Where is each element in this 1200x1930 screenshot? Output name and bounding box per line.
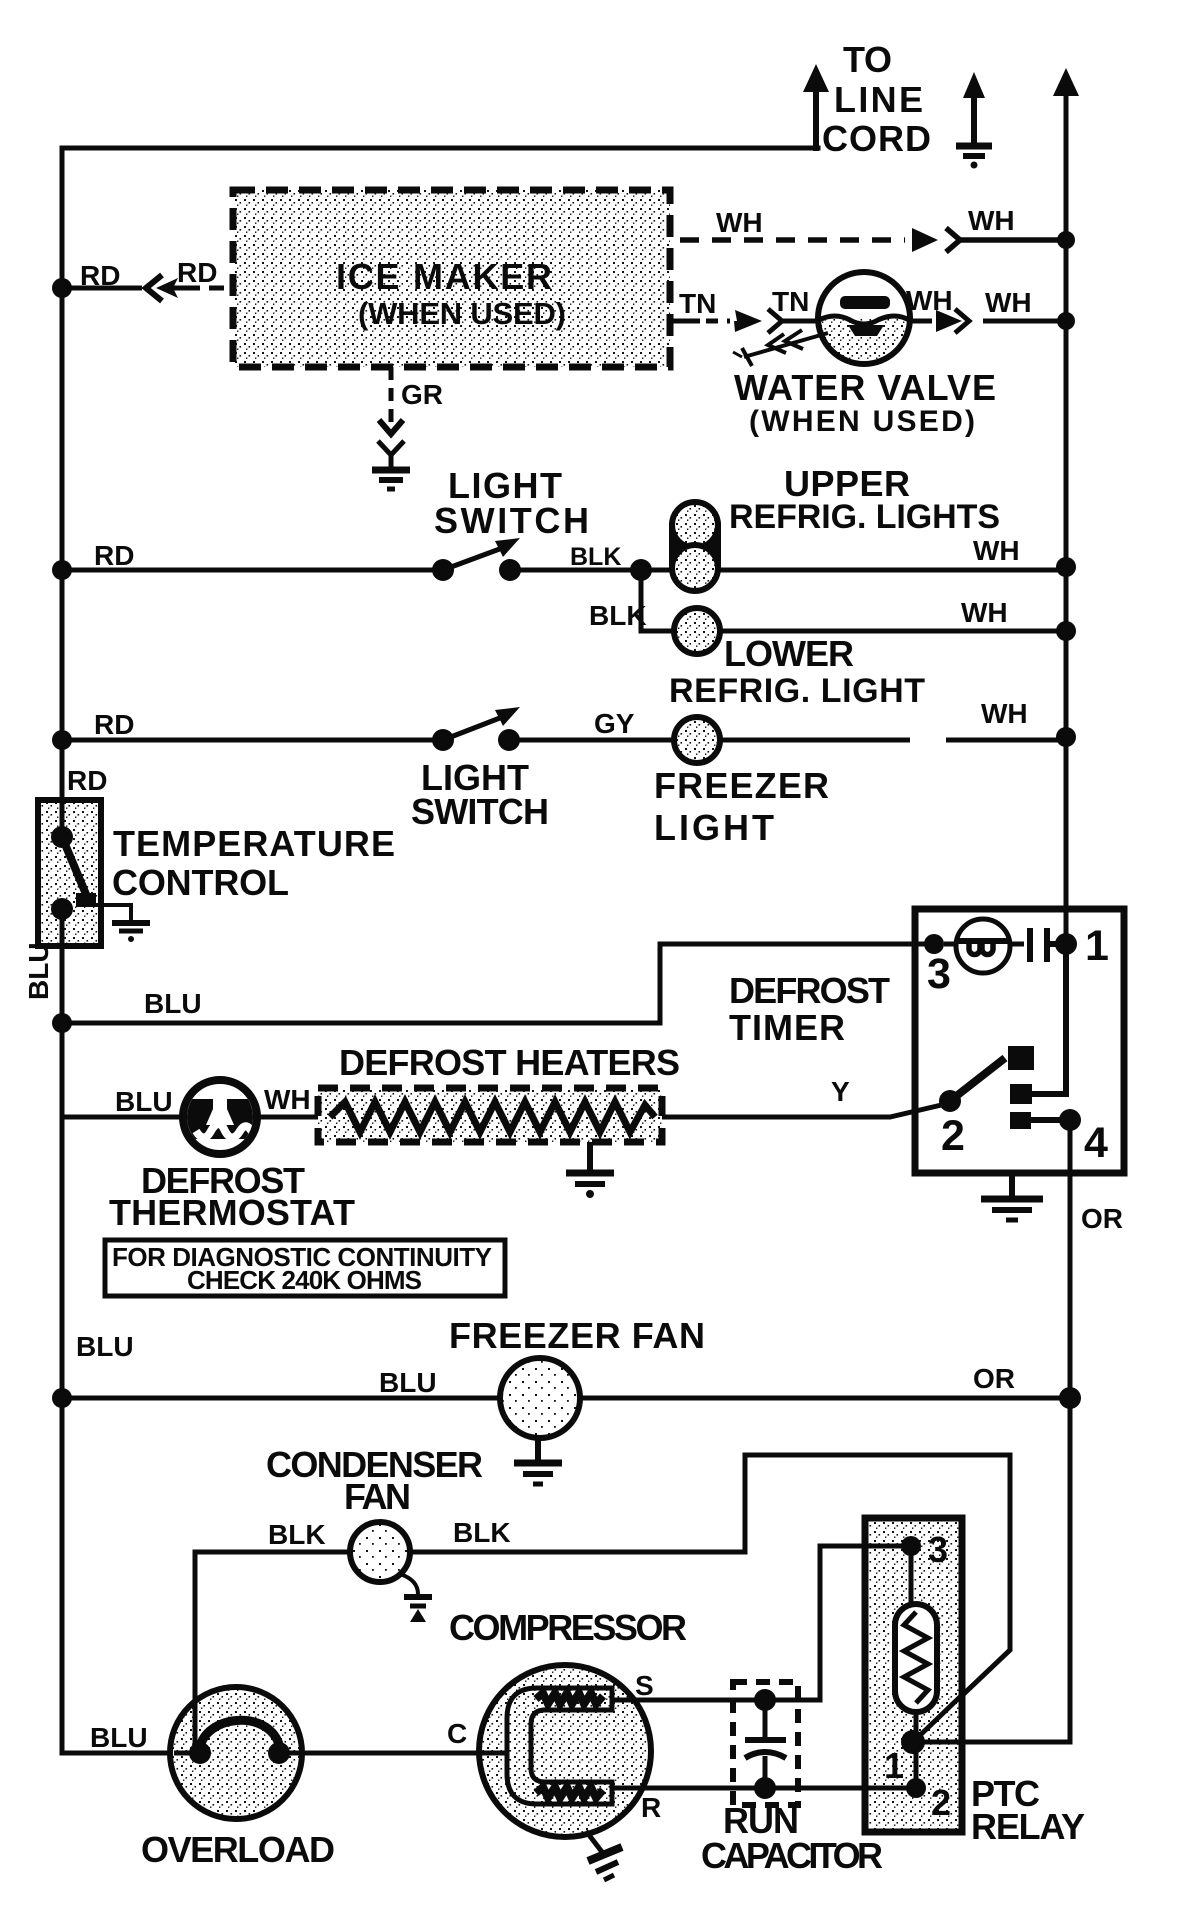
svg-text:RD: RD (94, 709, 134, 740)
svg-text:GY: GY (594, 708, 635, 739)
svg-text:RELAY: RELAY (971, 1806, 1085, 1847)
svg-text:TIMER: TIMER (729, 1007, 845, 1048)
svg-text:WH: WH (906, 285, 953, 316)
svg-text:BLU: BLU (23, 942, 54, 1000)
svg-text:SWITCH: SWITCH (434, 500, 589, 541)
svg-text:THERMOSTAT: THERMOSTAT (109, 1192, 355, 1233)
svg-text:GR: GR (401, 379, 443, 410)
svg-text:BLU: BLU (115, 1086, 173, 1117)
svg-text:RD: RD (177, 257, 217, 288)
svg-text:BLU: BLU (76, 1331, 134, 1362)
svg-text:CONTROL: CONTROL (112, 862, 289, 903)
svg-text:C: C (447, 1718, 467, 1749)
svg-text:3: 3 (928, 1529, 948, 1570)
svg-text:TO: TO (843, 39, 892, 80)
svg-text:3: 3 (927, 950, 951, 998)
svg-text:WH: WH (716, 207, 763, 238)
svg-text:DEFROST HEATERS: DEFROST HEATERS (339, 1042, 680, 1083)
svg-text:FAN: FAN (344, 1476, 411, 1517)
svg-text:4: 4 (1084, 1119, 1108, 1167)
svg-text:BLU: BLU (90, 1722, 148, 1753)
svg-text:OVERLOAD: OVERLOAD (141, 1829, 335, 1870)
svg-text:WH: WH (973, 535, 1020, 566)
svg-text:REFRIG. LIGHT: REFRIG. LIGHT (669, 672, 925, 710)
svg-text:RD: RD (94, 540, 134, 571)
svg-text:SWITCH: SWITCH (411, 791, 549, 832)
svg-text:WH: WH (968, 205, 1015, 236)
svg-text:RD: RD (67, 765, 107, 796)
svg-text:BLU: BLU (144, 988, 202, 1019)
svg-text:TEMPERATURE: TEMPERATURE (113, 823, 395, 864)
svg-text:ICE MAKER: ICE MAKER (336, 256, 552, 297)
svg-text:LIGHT: LIGHT (654, 807, 774, 848)
svg-text:WH: WH (981, 698, 1028, 729)
svg-text:TN: TN (679, 288, 716, 319)
svg-text:FREEZER FAN: FREEZER FAN (449, 1315, 705, 1356)
svg-text:CHECK 240K OHMS: CHECK 240K OHMS (187, 1265, 422, 1295)
svg-text:(WHEN USED): (WHEN USED) (358, 296, 566, 331)
svg-text:WH: WH (985, 287, 1032, 318)
svg-text:OR: OR (973, 1363, 1015, 1394)
svg-text:(WHEN USED): (WHEN USED) (749, 405, 975, 438)
svg-text:BLK: BLK (268, 1519, 326, 1550)
svg-text:WATER VALVE: WATER VALVE (734, 367, 996, 408)
svg-text:Y: Y (831, 1076, 850, 1107)
svg-text:1: 1 (884, 1745, 904, 1786)
svg-text:WH: WH (264, 1084, 311, 1115)
svg-text:CORD: CORD (822, 118, 931, 159)
svg-text:LINE: LINE (834, 79, 923, 120)
svg-text:BLU: BLU (379, 1367, 437, 1398)
svg-text:RD: RD (80, 260, 120, 291)
svg-text:CAPACITOR: CAPACITOR (701, 1835, 883, 1876)
svg-text:BLK: BLK (453, 1517, 511, 1548)
svg-text:LOWER: LOWER (724, 633, 854, 674)
svg-text:FREEZER: FREEZER (654, 765, 829, 806)
svg-text:R: R (641, 1792, 661, 1823)
svg-text:BLK: BLK (589, 600, 647, 631)
svg-text:2: 2 (931, 1782, 951, 1823)
svg-text:TN: TN (772, 286, 809, 317)
svg-text:COMPRESSOR: COMPRESSOR (449, 1607, 687, 1648)
svg-text:2: 2 (941, 1112, 965, 1160)
svg-text:WH: WH (961, 597, 1008, 628)
svg-text:1: 1 (1085, 922, 1109, 970)
svg-text:OR: OR (1081, 1203, 1123, 1234)
svg-text:REFRIG. LIGHTS: REFRIG. LIGHTS (729, 498, 1000, 536)
svg-text:DEFROST: DEFROST (729, 970, 890, 1011)
svg-text:BLK: BLK (570, 543, 621, 571)
svg-text:S: S (635, 1670, 654, 1701)
